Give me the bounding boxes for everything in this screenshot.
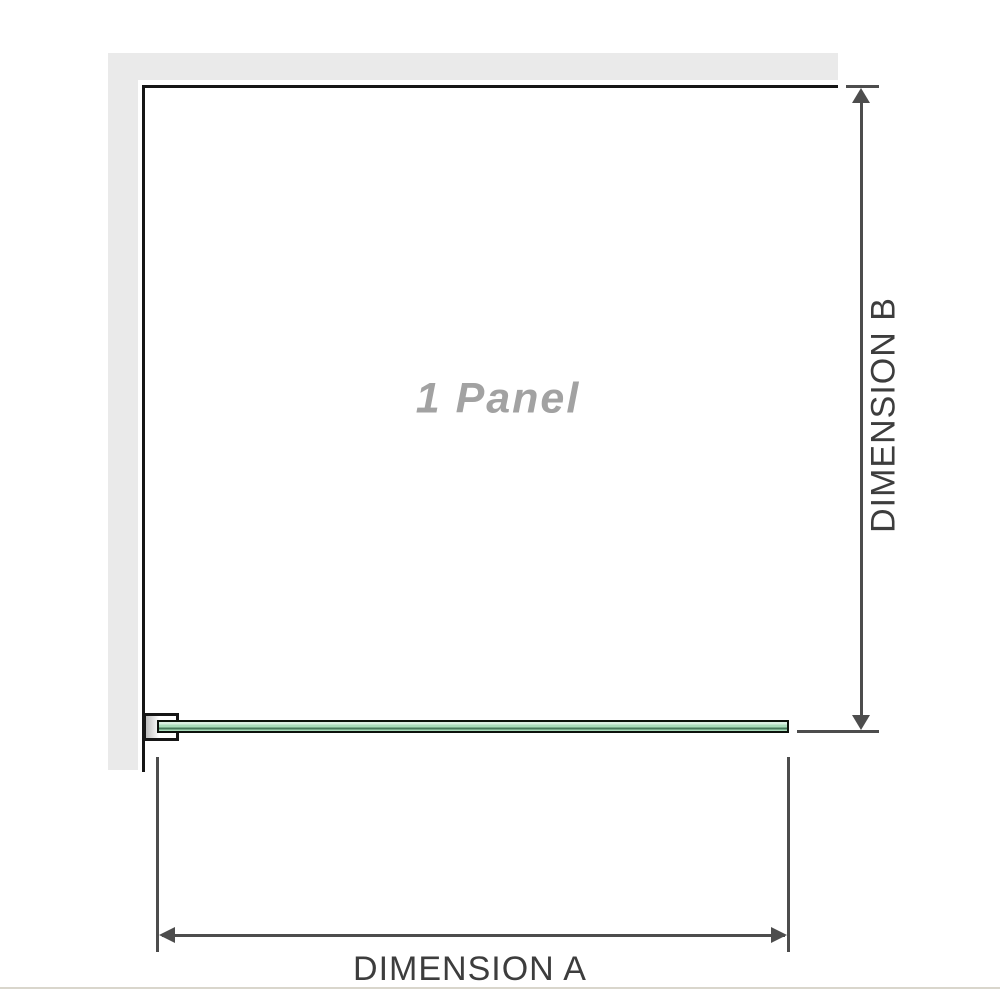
arrow-down-icon — [852, 715, 870, 730]
dim-b-tick-bottom — [797, 730, 879, 733]
wall-left-segment — [108, 53, 138, 770]
page-baseline-divider — [0, 987, 1000, 989]
dim-a-extension-left — [156, 757, 159, 952]
panel-dimension-diagram: DIMENSION B DIMENSION A 1 Panel — [0, 0, 1000, 1000]
arrow-up-icon — [852, 88, 870, 103]
dim-a-line — [162, 934, 785, 937]
dim-a-extension-right — [787, 757, 790, 952]
arrow-right-icon — [771, 927, 787, 943]
dim-b-line — [860, 92, 863, 726]
arrow-left-icon — [159, 927, 175, 943]
panel-outline-left — [142, 85, 145, 772]
dimension-a-label: DIMENSION A — [353, 950, 587, 989]
panel-outline-top — [142, 85, 838, 88]
dimension-b-label: DIMENSION B — [865, 297, 904, 533]
wall-top-segment — [108, 53, 838, 80]
glass-panel-bar — [157, 720, 789, 733]
panel-count-label: 1 Panel — [416, 375, 581, 424]
